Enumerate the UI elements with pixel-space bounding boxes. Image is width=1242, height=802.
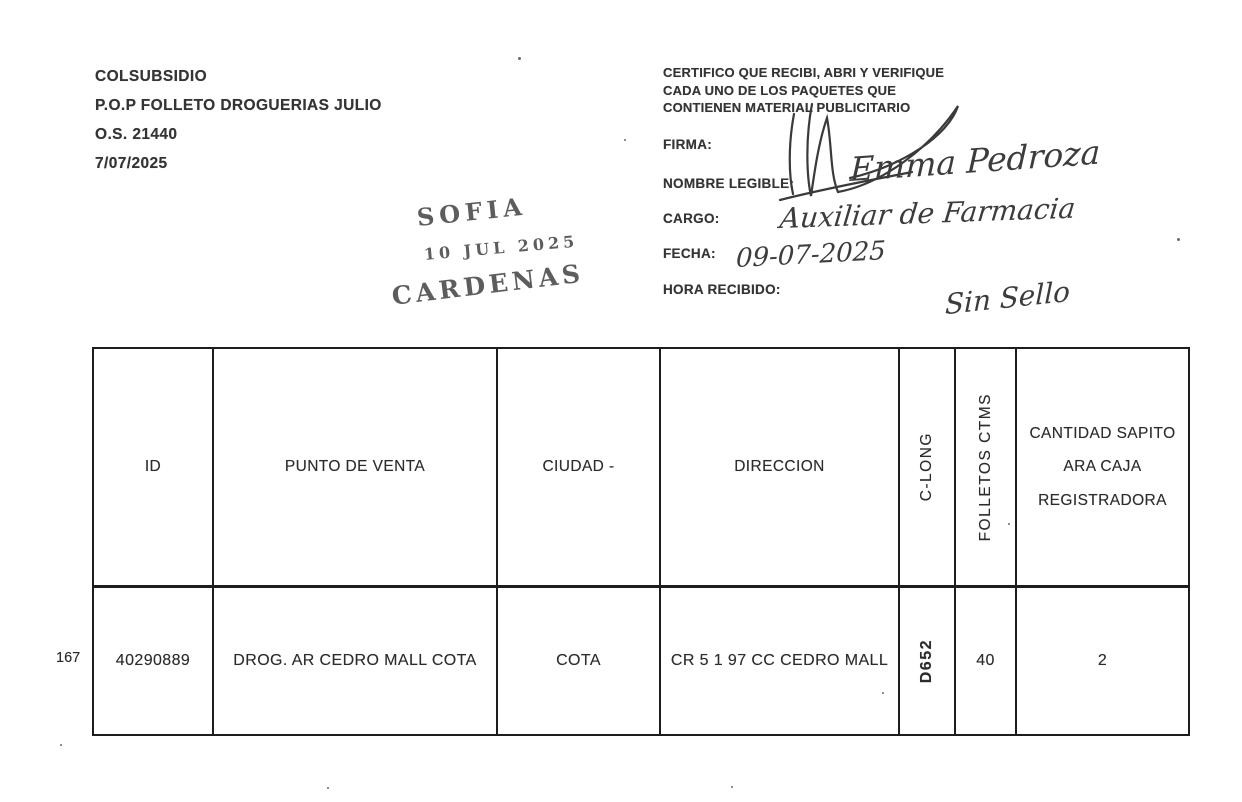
scan-noise-dot xyxy=(327,787,329,789)
order-date: 7/07/2025 xyxy=(95,149,382,178)
scan-noise-dot xyxy=(1008,523,1010,525)
scan-noise-dot xyxy=(624,139,626,141)
stamp-location-bottom: CARDENAS xyxy=(390,259,585,311)
col-header-punto-de-venta: PUNTO DE VENTA xyxy=(214,349,498,588)
col-header-direccion: DIRECCION xyxy=(661,349,900,588)
hora-recibido-label: HORA RECIBIDO: xyxy=(663,282,781,297)
stamp-location-top: SOFIA xyxy=(415,192,528,232)
scan-noise-dot xyxy=(731,786,733,788)
scanned-delivery-form: COLSUBSIDIO P.O.P FOLLETO DROGUERIAS JUL… xyxy=(0,0,1242,802)
row-cell-cantidad: 2 xyxy=(1017,588,1188,734)
scan-noise-dot xyxy=(882,692,884,694)
col-header-ciudad: CIUDAD - xyxy=(498,349,661,588)
row-cell-ciudad: COTA xyxy=(498,588,661,734)
row-cell-id: 40290889 xyxy=(94,588,214,734)
distribution-table: ID PUNTO DE VENTA CIUDAD - DIRECCION C-L… xyxy=(92,347,1190,736)
scan-noise-dot xyxy=(1177,238,1180,241)
firma-label: FIRMA: xyxy=(663,137,712,152)
col-header-id: ID xyxy=(94,349,214,588)
col-header-folletos-ctms: FOLLETOS CTMS xyxy=(956,349,1017,588)
order-number: O.S. 21440 xyxy=(95,120,382,149)
row-cell-c-long: D652 xyxy=(900,588,956,734)
sin-sello-note: Sin Sello xyxy=(945,275,1070,321)
col-header-cantidad-sapito: CANTIDAD SAPITO ARA CAJA REGISTRADORA xyxy=(1017,349,1188,588)
order-header: COLSUBSIDIO P.O.P FOLLETO DROGUERIAS JUL… xyxy=(95,62,382,178)
fecha-label: FECHA: xyxy=(663,246,716,261)
scan-noise-dot xyxy=(60,744,62,746)
margin-row-number: 167 xyxy=(56,650,80,666)
col-header-c-long: C-LONG xyxy=(900,349,956,588)
row-cell-direccion: CR 5 1 97 CC CEDRO MALL xyxy=(661,588,900,734)
stamp-date: 10 JUL 2025 xyxy=(423,232,579,264)
row-cell-punto-de-venta: DROG. AR CEDRO MALL COTA xyxy=(214,588,498,734)
cargo-label: CARGO: xyxy=(663,211,720,226)
fecha-handwritten: 09-07-2025 xyxy=(735,236,886,274)
certification-line: CERTIFICO QUE RECIBI, ABRI Y VERIFIQUE xyxy=(663,64,944,82)
campaign-title: P.O.P FOLLETO DROGUERIAS JULIO xyxy=(95,91,382,120)
row-cell-folletos: 40 xyxy=(956,588,1017,734)
scan-noise-dot xyxy=(518,57,521,60)
company-name: COLSUBSIDIO xyxy=(95,62,382,91)
